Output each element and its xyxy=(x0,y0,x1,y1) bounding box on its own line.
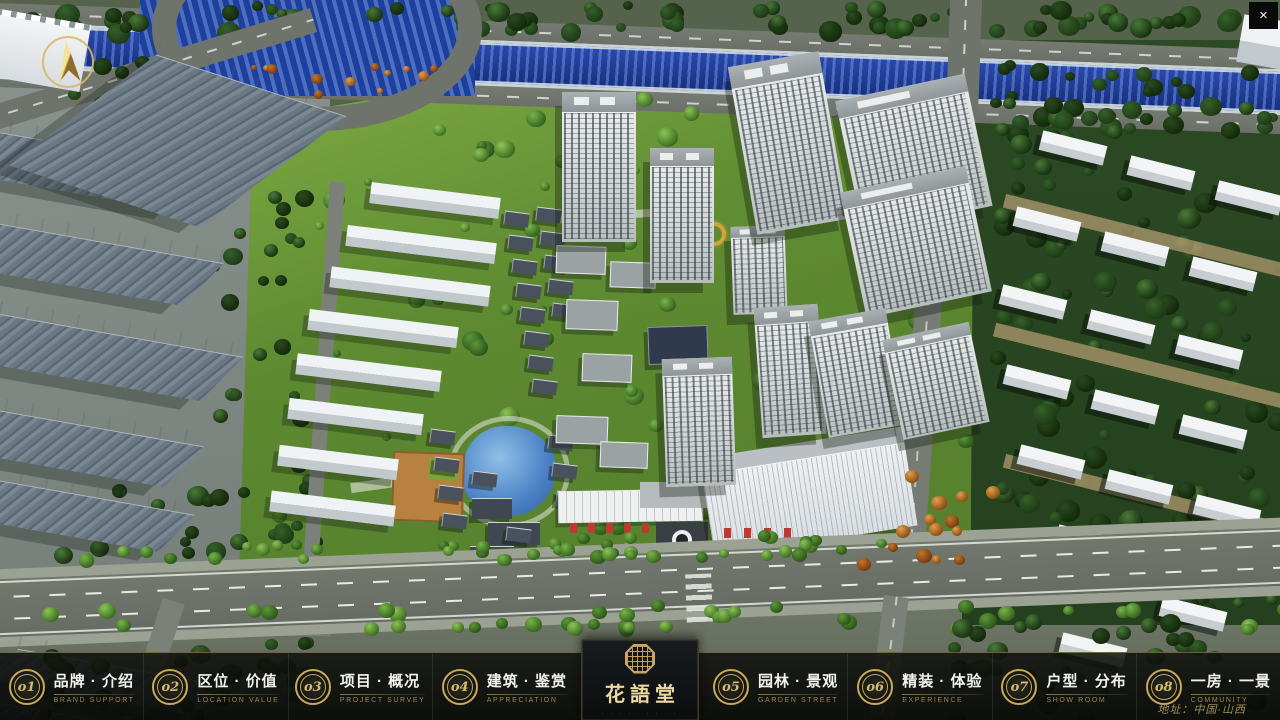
tree xyxy=(247,604,262,618)
nav-divider-line xyxy=(54,694,135,695)
tree xyxy=(1011,157,1025,169)
nav-item-project-survey[interactable]: o3 项目 · 概况 PROJECT SURVEY xyxy=(288,653,432,720)
tree xyxy=(592,606,606,619)
nav-divider-line xyxy=(758,694,838,695)
tree xyxy=(836,545,847,555)
nav-divider-line xyxy=(902,694,982,695)
nav-label-cn: 建筑 · 鉴赏 xyxy=(487,670,567,691)
villa-roof xyxy=(437,485,464,502)
tree xyxy=(561,23,581,41)
tree xyxy=(272,540,284,551)
tree xyxy=(311,74,322,84)
tree xyxy=(1106,70,1118,81)
residential-tower xyxy=(840,166,992,318)
villa-roof xyxy=(507,235,534,252)
tree xyxy=(761,550,773,561)
tree xyxy=(625,385,638,396)
tree xyxy=(238,487,250,498)
nav-label-en: EXPERIENCE xyxy=(902,697,982,704)
seal-icon xyxy=(625,644,655,674)
tree xyxy=(670,18,685,31)
tree xyxy=(208,552,223,565)
tree xyxy=(476,541,490,554)
nav-number-badge: o6 xyxy=(857,669,893,705)
red-storefront xyxy=(642,523,649,533)
tree xyxy=(1171,316,1189,332)
tree xyxy=(684,106,700,120)
tree xyxy=(1241,65,1259,81)
tree xyxy=(116,619,130,632)
tree xyxy=(1050,1,1071,20)
tree xyxy=(496,618,508,629)
tree xyxy=(1049,512,1062,524)
villa-roof xyxy=(531,379,558,396)
tree xyxy=(696,552,708,563)
nav-label-cn: 户型 · 分布 xyxy=(1046,670,1126,691)
tree xyxy=(469,622,480,632)
tree xyxy=(378,603,394,618)
tree xyxy=(659,297,676,312)
tree xyxy=(497,554,511,567)
tree xyxy=(567,621,583,636)
nav-divider-line xyxy=(1191,694,1271,695)
tree xyxy=(1108,13,1129,31)
nav-label-en: SHOW ROOM xyxy=(1046,697,1126,704)
villa-roof xyxy=(547,279,574,296)
tree xyxy=(256,543,270,556)
villa-roof xyxy=(535,207,562,224)
tree xyxy=(391,620,406,633)
tree xyxy=(1202,322,1222,340)
tree xyxy=(625,550,637,560)
tree xyxy=(779,545,793,557)
villa-roof xyxy=(519,307,546,324)
tree xyxy=(1025,614,1042,629)
tree xyxy=(873,22,885,33)
tree xyxy=(140,546,153,558)
tree xyxy=(657,127,678,146)
tree xyxy=(1083,167,1093,176)
tree xyxy=(452,622,464,633)
tree xyxy=(1012,115,1029,130)
tree xyxy=(79,553,95,567)
tree xyxy=(473,148,488,162)
nav-divider-line xyxy=(197,694,279,695)
tree xyxy=(1200,97,1222,117)
tree xyxy=(845,2,858,13)
nav-label-cn: 品牌 · 介绍 xyxy=(54,670,135,691)
tree xyxy=(1084,12,1095,22)
tree xyxy=(994,208,1011,223)
courtyard-hall-roof xyxy=(472,498,512,519)
tree xyxy=(93,58,112,75)
tree xyxy=(1239,102,1254,115)
tree xyxy=(223,248,242,265)
villa-roof xyxy=(429,429,456,446)
tree xyxy=(1140,113,1153,125)
nav-label-en: APPRECIATION xyxy=(487,697,567,704)
tree xyxy=(623,1,633,10)
tree xyxy=(1124,123,1136,134)
tree xyxy=(382,433,391,441)
villa-roof xyxy=(515,283,542,300)
tree xyxy=(98,603,116,619)
compass-icon xyxy=(40,34,96,90)
project-address: 地址：中国·山西 xyxy=(1157,701,1246,717)
tree xyxy=(1098,108,1115,123)
tree xyxy=(345,77,355,86)
nav-item-garden-landscape[interactable]: o5 园林 · 景观 GARDEN STREET xyxy=(704,653,847,720)
tree xyxy=(1145,298,1168,318)
nav-number-badge: o1 xyxy=(9,669,45,705)
tree xyxy=(500,304,513,315)
tree xyxy=(916,549,932,563)
tree xyxy=(265,639,278,650)
villa-roof xyxy=(441,513,468,530)
tree xyxy=(377,88,383,94)
midrise-roof xyxy=(565,299,618,331)
tree xyxy=(164,553,177,564)
tree xyxy=(1178,632,1194,647)
seal-pattern xyxy=(627,646,653,672)
tree xyxy=(929,523,943,536)
tree xyxy=(753,4,769,18)
tree xyxy=(979,613,997,629)
bottom-nav-bar: o1 品牌 · 介绍 BRAND SUPPORT o2 区位 · 价值 LOCA… xyxy=(0,652,1280,720)
tree xyxy=(1240,466,1255,479)
tree xyxy=(1217,12,1239,32)
nav-number-badge: o5 xyxy=(713,669,749,705)
tree xyxy=(274,339,291,354)
tree xyxy=(1143,87,1154,97)
residential-tower xyxy=(562,92,636,242)
tree xyxy=(1241,624,1254,636)
tree xyxy=(1044,97,1063,114)
tree xyxy=(954,555,965,565)
tree xyxy=(221,294,239,310)
tree xyxy=(1218,299,1236,315)
tree xyxy=(989,24,1005,39)
tree xyxy=(719,549,729,558)
nav-item-interior-experience[interactable]: o6 精装 · 体验 EXPERIENCE xyxy=(847,653,991,720)
residential-tower xyxy=(650,148,714,283)
villa-roof xyxy=(523,331,550,348)
tree xyxy=(560,543,574,556)
tree xyxy=(1003,98,1016,109)
tree xyxy=(952,619,973,638)
tree xyxy=(792,548,808,562)
tree xyxy=(758,530,771,542)
tree xyxy=(995,123,1010,136)
nav-number-badge: o2 xyxy=(152,669,188,705)
tree xyxy=(986,486,1000,499)
nav-divider-line xyxy=(487,694,567,695)
villa-roof xyxy=(527,355,554,372)
tree xyxy=(261,605,278,620)
tree xyxy=(649,419,663,432)
midrise-roof xyxy=(600,441,649,469)
tree xyxy=(267,64,277,73)
tree xyxy=(646,550,661,563)
tree xyxy=(371,63,379,71)
presentation-app-window: × o1 品牌 · 介绍 BRAND SUPPORT o2 区位 · 价值 LO… xyxy=(0,0,1280,720)
tree xyxy=(1065,72,1075,81)
nav-label-cn: 园林 · 景观 xyxy=(758,670,838,691)
tree xyxy=(469,339,488,356)
red-storefront xyxy=(588,523,595,533)
tree xyxy=(54,547,73,564)
tree xyxy=(651,600,665,612)
nav-label-en: BRAND SUPPORT xyxy=(54,697,135,704)
tree xyxy=(930,13,940,22)
midrise-roof xyxy=(556,245,607,275)
nav-label-en: GARDEN STREET xyxy=(758,697,838,704)
tree xyxy=(364,622,380,636)
tree xyxy=(42,607,58,622)
tree xyxy=(403,66,409,72)
red-storefront xyxy=(570,523,577,533)
tree xyxy=(1141,618,1158,633)
tree xyxy=(1122,101,1142,119)
villa-roof xyxy=(505,527,532,544)
nav-item-location-value[interactable]: o2 区位 · 价值 LOCATION VALUE xyxy=(143,653,287,720)
tree xyxy=(1117,187,1132,201)
tree xyxy=(602,547,617,560)
tree xyxy=(1116,626,1131,639)
nav-label-cn: 项目 · 概况 xyxy=(340,670,426,691)
tree xyxy=(1056,240,1067,250)
red-storefront xyxy=(744,528,751,538)
villa-roof xyxy=(511,259,538,276)
tree xyxy=(867,1,886,18)
tree xyxy=(819,21,842,41)
nav-number-badge: o7 xyxy=(1001,669,1037,705)
tree xyxy=(527,549,540,560)
red-storefront xyxy=(606,523,613,533)
tree xyxy=(588,619,600,630)
tree xyxy=(1033,404,1056,425)
nav-number-badge: o3 xyxy=(295,669,331,705)
tree xyxy=(1257,111,1272,125)
red-storefront xyxy=(724,528,731,538)
tree xyxy=(1178,84,1195,99)
nav-item-architecture[interactable]: o4 建筑 · 鉴赏 APPRECIATION xyxy=(432,653,576,720)
tree xyxy=(1245,402,1268,423)
villa-roof xyxy=(503,211,530,228)
project-logo[interactable]: 花語堂 · · · · · · · · · xyxy=(581,639,699,720)
tree xyxy=(1076,375,1095,392)
tree xyxy=(912,14,927,27)
tree xyxy=(931,496,947,510)
tree xyxy=(1163,116,1184,135)
nav-label-cn: 精装 · 体验 xyxy=(902,670,982,691)
logo-title: 花語堂 xyxy=(605,678,680,707)
tree xyxy=(443,546,454,555)
tree xyxy=(494,140,515,159)
tree xyxy=(1054,112,1074,130)
close-icon[interactable]: × xyxy=(1249,2,1278,29)
tree xyxy=(990,98,1002,108)
villa-roof xyxy=(551,463,578,480)
tree xyxy=(1062,289,1072,298)
nav-divider-line xyxy=(340,694,426,695)
tree xyxy=(998,63,1011,75)
midrise-roof xyxy=(582,353,633,383)
masterplan-3d-view[interactable] xyxy=(0,0,1280,720)
tree xyxy=(1030,63,1049,80)
nav-label-en: LOCATION VALUE xyxy=(197,697,279,704)
tree xyxy=(896,20,914,36)
tree xyxy=(1125,603,1141,618)
nav-item-floorplan-distribution[interactable]: o7 户型 · 分布 SHOW ROOM xyxy=(992,653,1136,720)
nav-number-badge: o4 xyxy=(442,669,478,705)
tree xyxy=(526,110,545,127)
tree xyxy=(958,434,973,448)
tree xyxy=(952,526,963,536)
villa-roof xyxy=(471,471,498,488)
villa-roof xyxy=(433,457,460,474)
tree xyxy=(896,525,910,538)
nav-label-en: PROJECT SURVEY xyxy=(340,697,426,704)
residential-tower xyxy=(662,357,736,487)
tree xyxy=(1130,18,1152,37)
residential-tower xyxy=(730,225,787,315)
tree xyxy=(253,348,267,361)
nav-item-brand-intro[interactable]: o1 品牌 · 介绍 BRAND SUPPORT xyxy=(0,653,143,720)
nav-label-cn: 一房 · 一景 xyxy=(1191,670,1271,691)
tree xyxy=(120,22,132,33)
tree xyxy=(507,13,527,31)
tree xyxy=(1033,21,1048,34)
tree xyxy=(876,539,886,548)
tree xyxy=(213,409,228,422)
tree xyxy=(460,223,470,232)
nav-number-badge: o8 xyxy=(1146,669,1182,705)
logo-subtitle: · · · · · · · · · xyxy=(601,711,678,717)
tree xyxy=(586,6,603,22)
nav-divider-line xyxy=(1046,694,1126,695)
tree xyxy=(298,637,312,649)
nav-label-cn: 区位 · 价值 xyxy=(197,670,279,691)
tree xyxy=(636,92,653,107)
tree xyxy=(998,606,1015,621)
tree xyxy=(1248,488,1270,508)
tree xyxy=(1081,111,1098,126)
tree xyxy=(1194,193,1217,213)
tree xyxy=(1221,122,1240,139)
tree xyxy=(577,533,589,544)
tree xyxy=(1083,447,1107,468)
tree xyxy=(958,600,974,614)
tree xyxy=(433,124,446,136)
tree xyxy=(1034,159,1051,175)
